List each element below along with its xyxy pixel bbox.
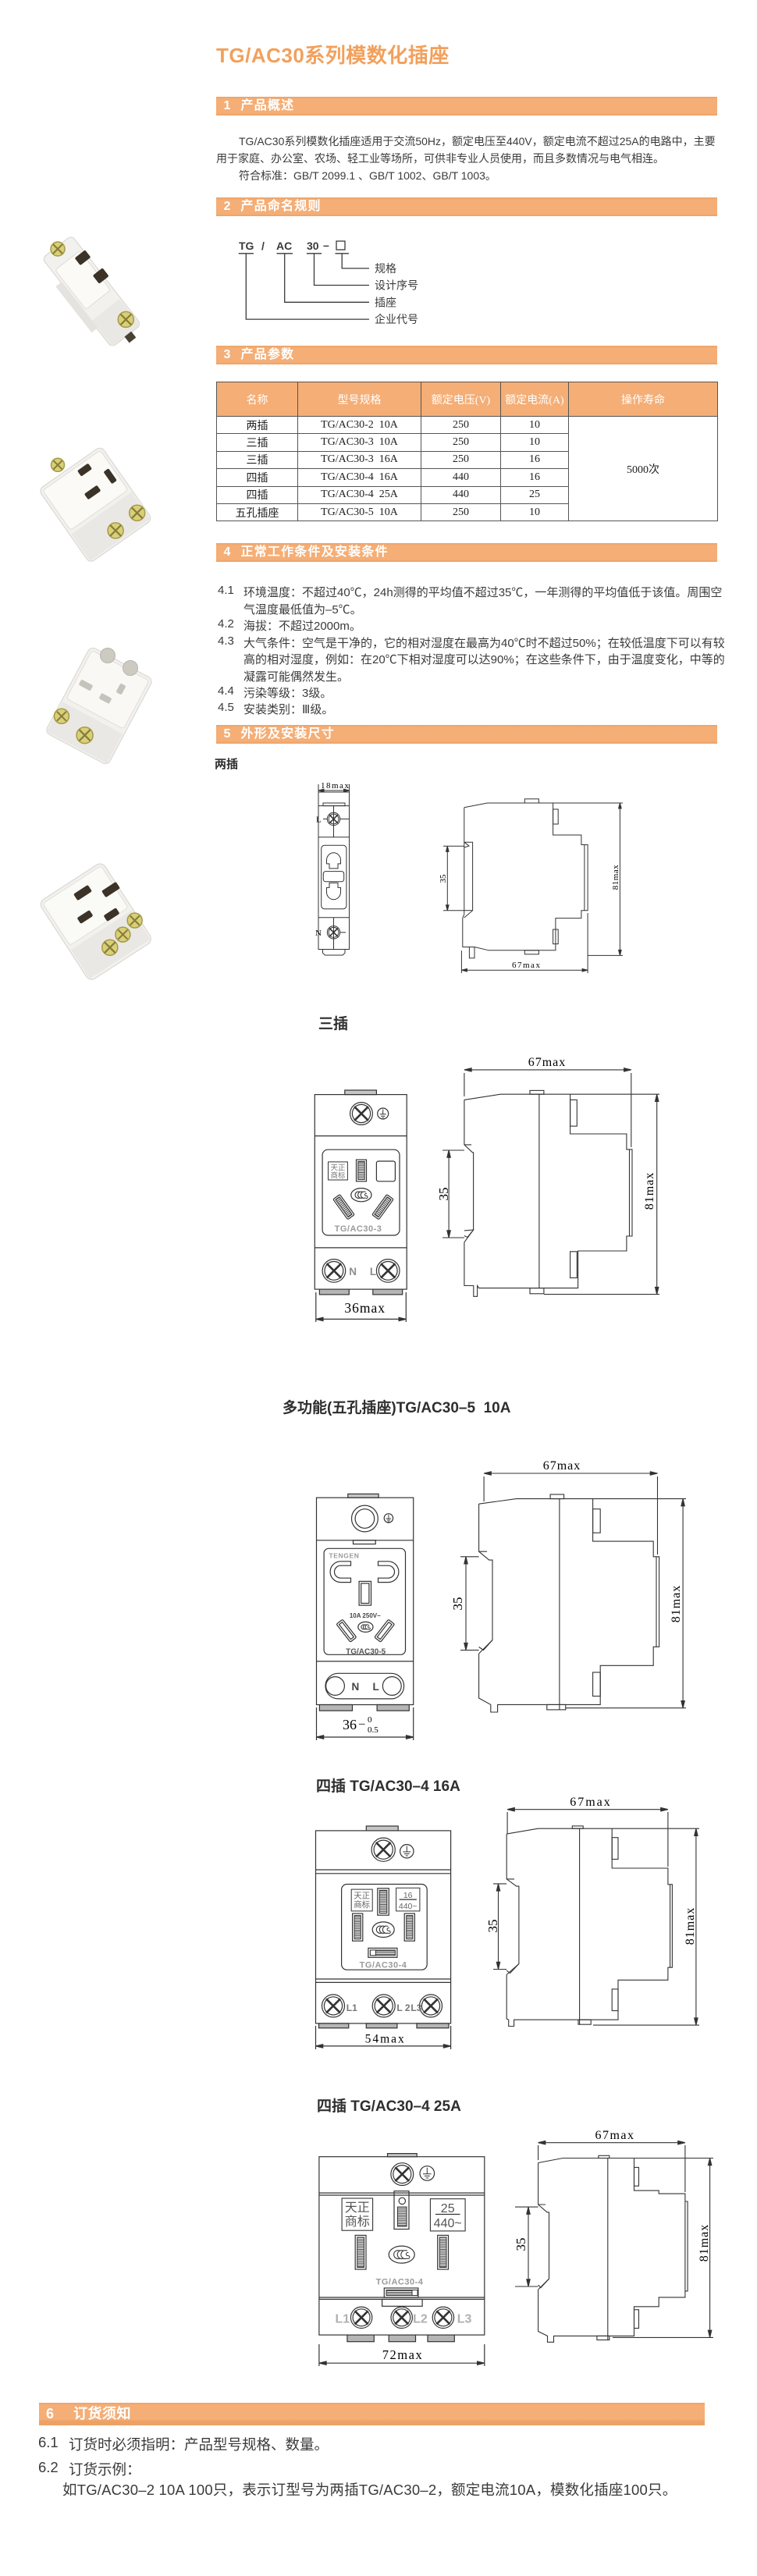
svg-text:设计序号: 设计序号 xyxy=(375,279,418,292)
svg-text:67max: 67max xyxy=(595,2129,634,2142)
svg-text:54max: 54max xyxy=(365,2033,406,2046)
svg-text:TG: TG xyxy=(239,240,254,252)
svg-text:81max: 81max xyxy=(611,865,620,890)
svg-text:商标: 商标 xyxy=(330,1171,346,1181)
svg-text:18max: 18max xyxy=(321,781,350,791)
svg-text:35: 35 xyxy=(514,2238,528,2251)
svg-text:N: N xyxy=(352,1681,360,1693)
svg-text:81max: 81max xyxy=(643,1172,656,1210)
svg-text:–: – xyxy=(358,1718,365,1730)
svg-text:35: 35 xyxy=(439,874,448,883)
svg-text:L: L xyxy=(373,1681,379,1693)
svg-text:L: L xyxy=(370,1266,376,1277)
svg-text:10A 250V~: 10A 250V~ xyxy=(350,1612,381,1619)
svg-text:67max: 67max xyxy=(543,1459,581,1473)
svg-text:67max: 67max xyxy=(512,961,541,970)
svg-text:81max: 81max xyxy=(698,2224,711,2262)
svg-text:TENGEN: TENGEN xyxy=(329,1552,360,1560)
svg-text:81max: 81max xyxy=(670,1585,683,1623)
svg-text:商标: 商标 xyxy=(354,1899,370,1910)
svg-text:L3: L3 xyxy=(410,2002,421,2013)
svg-text:TG/AC30-4: TG/AC30-4 xyxy=(360,1961,407,1970)
svg-text:35: 35 xyxy=(450,1597,465,1611)
svg-text:0.5: 0.5 xyxy=(368,1725,378,1735)
svg-text:N: N xyxy=(315,929,322,938)
svg-text:440~: 440~ xyxy=(434,2217,462,2230)
svg-text:–: – xyxy=(323,239,329,251)
svg-text:81max: 81max xyxy=(684,1907,697,1945)
svg-text:72max: 72max xyxy=(382,2347,423,2362)
svg-text:企业代号: 企业代号 xyxy=(375,313,418,325)
svg-text:/: / xyxy=(261,240,265,252)
svg-text:440~: 440~ xyxy=(399,1902,418,1911)
svg-text:16: 16 xyxy=(403,1891,413,1900)
svg-text:0: 0 xyxy=(368,1715,372,1725)
svg-text:规格: 规格 xyxy=(375,262,396,275)
svg-text:L3: L3 xyxy=(457,2313,472,2326)
svg-text:36: 36 xyxy=(343,1717,357,1732)
svg-text:天正: 天正 xyxy=(345,2201,370,2215)
svg-text:L1: L1 xyxy=(336,2313,350,2326)
svg-text:AC: AC xyxy=(276,240,292,252)
svg-text:TG/AC30-3: TG/AC30-3 xyxy=(335,1224,382,1234)
svg-text:L 2: L 2 xyxy=(396,2002,410,2013)
svg-text:TG/AC30-4: TG/AC30-4 xyxy=(376,2278,424,2287)
svg-text:25: 25 xyxy=(441,2202,455,2215)
svg-text:天正: 天正 xyxy=(354,1892,370,1901)
svg-text:L2: L2 xyxy=(413,2313,428,2326)
svg-text:35: 35 xyxy=(436,1188,451,1201)
svg-text:插座: 插座 xyxy=(375,296,396,308)
svg-text:商标: 商标 xyxy=(345,2215,370,2229)
svg-text:36max: 36max xyxy=(344,1300,386,1316)
svg-text:TG/AC30-5: TG/AC30-5 xyxy=(346,1648,386,1657)
svg-text:L: L xyxy=(316,815,322,825)
svg-text:35: 35 xyxy=(485,1920,500,1933)
svg-text:30: 30 xyxy=(307,240,319,252)
svg-text:N: N xyxy=(349,1266,357,1277)
svg-text:67max: 67max xyxy=(528,1056,567,1069)
svg-text:L1: L1 xyxy=(347,2002,357,2013)
svg-text:67max: 67max xyxy=(570,1796,612,1809)
